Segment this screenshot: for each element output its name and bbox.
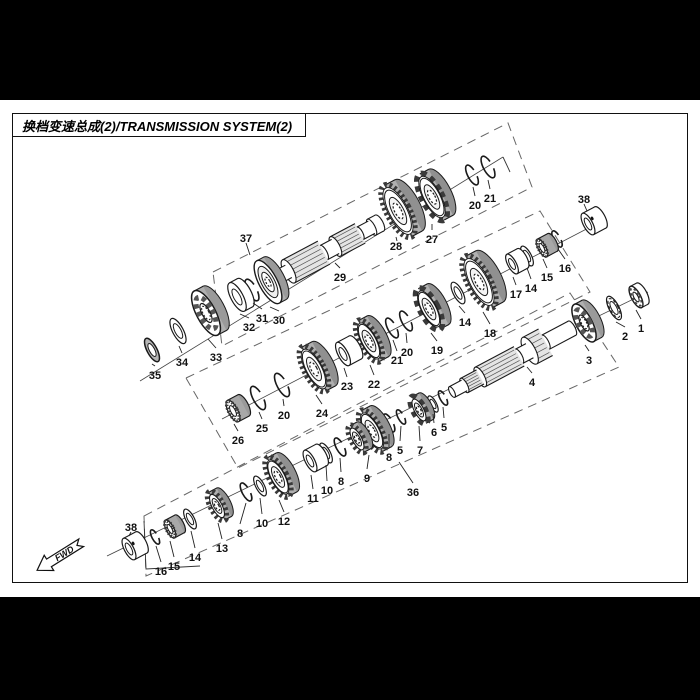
leader-line-22 (370, 365, 374, 375)
title-box: 换档变速总成(2)/TRANSMISSION SYSTEM(2) (12, 113, 306, 137)
callout-31: 31 (256, 313, 268, 325)
callout-7: 7 (417, 445, 423, 457)
callout-38: 38 (578, 194, 590, 206)
part-32 (224, 276, 258, 314)
part-20 (397, 309, 415, 332)
leader-line-34 (179, 346, 182, 353)
leader-line-19 (431, 333, 437, 341)
part-16 (149, 529, 162, 546)
leader-line-8 (340, 458, 341, 472)
callout-22: 22 (368, 379, 380, 391)
callout-10: 10 (321, 485, 333, 497)
callout-8: 8 (237, 528, 243, 540)
part-15 (162, 513, 188, 539)
callout-4: 4 (529, 377, 536, 389)
leader-line-7 (419, 426, 420, 441)
callout-13: 13 (216, 543, 228, 555)
callout-14: 14 (459, 317, 472, 329)
callout-2: 2 (622, 331, 628, 343)
callout-1: 1 (638, 323, 644, 335)
callout-15: 15 (541, 272, 553, 284)
callout-10: 10 (256, 518, 268, 530)
leader-line-11 (311, 475, 313, 489)
leader-line-5 (400, 426, 401, 441)
leader-line-10 (326, 465, 327, 481)
callout-20: 20 (401, 347, 413, 359)
leader-line-15 (543, 259, 547, 268)
part-35 (142, 336, 163, 364)
leader-line-15 (170, 541, 174, 557)
part-29 (270, 210, 389, 290)
leader-line-26 (234, 424, 238, 431)
callout-9: 9 (364, 473, 370, 485)
leader-line-10 (260, 498, 262, 514)
fwd-arrow: FWD (32, 535, 86, 578)
callout-17: 17 (510, 289, 522, 301)
callout-28: 28 (390, 241, 402, 253)
part-34 (167, 316, 190, 346)
leader-line-35 (152, 364, 155, 366)
leader-line-12 (279, 500, 284, 512)
leader-line-17 (513, 277, 516, 285)
leader-line-20 (283, 399, 284, 406)
callout-32: 32 (243, 322, 255, 334)
callout-36: 36 (407, 487, 419, 499)
leader-line-33 (208, 339, 216, 348)
callout-21: 21 (484, 193, 496, 205)
callout-38: 38 (125, 522, 137, 534)
part-19 (411, 280, 457, 333)
part-2 (604, 294, 625, 322)
leader-line-18 (483, 312, 490, 324)
callout-23: 23 (341, 381, 353, 393)
callout-15: 15 (168, 561, 180, 573)
leader-line-2 (616, 322, 625, 327)
callout-25: 25 (256, 423, 268, 435)
part-25 (248, 384, 269, 412)
callout-30: 30 (273, 315, 285, 327)
leader-line-21 (393, 340, 397, 351)
leader-line-24 (316, 395, 322, 404)
part-38 (119, 530, 151, 562)
callout-34: 34 (176, 357, 189, 369)
exploded-diagram: 3534333231302928272021373826252024232221… (0, 0, 700, 700)
callout-8: 8 (338, 476, 344, 488)
leader-line-13 (218, 523, 222, 539)
callout-16: 16 (155, 566, 167, 578)
leader-line-29 (335, 263, 340, 268)
callout-35: 35 (149, 370, 161, 382)
callout-5: 5 (397, 445, 403, 457)
leader-line-14 (527, 268, 531, 279)
leader-line-14 (459, 306, 465, 313)
callout-19: 19 (431, 345, 443, 357)
part-8 (238, 481, 254, 502)
leader-line-16 (156, 546, 161, 562)
leader-line-3 (585, 345, 589, 351)
callout-6: 6 (431, 427, 437, 439)
callout-3: 3 (586, 355, 592, 367)
callout-29: 29 (334, 272, 346, 284)
part-38 (578, 205, 610, 237)
part-20 (272, 371, 293, 399)
page-title: 换档变速总成(2)/TRANSMISSION SYSTEM(2) (13, 116, 292, 135)
callout-11: 11 (307, 493, 319, 505)
axis-bracket-line (503, 157, 510, 172)
leader-line-25 (259, 412, 262, 419)
leader-line-30 (270, 307, 279, 311)
leader-line-23 (344, 368, 347, 377)
leader-line-8 (240, 503, 246, 524)
callout-27: 27 (426, 234, 438, 246)
callout-37: 37 (240, 233, 252, 245)
callout-8: 8 (386, 452, 392, 464)
callout-14: 14 (525, 283, 538, 295)
leader-line-21 (488, 180, 490, 189)
part-14 (448, 280, 467, 306)
callout-14: 14 (189, 552, 202, 564)
callout-20: 20 (278, 410, 290, 422)
parts-diagram-page: 3534333231302928272021373826252024232221… (0, 0, 700, 700)
part-5 (395, 409, 408, 426)
callout-18: 18 (484, 328, 496, 340)
part-26 (223, 393, 253, 424)
part-3 (567, 296, 609, 345)
leader-line-4 (527, 367, 532, 373)
part-5 (437, 390, 450, 407)
leader-line-9 (367, 455, 369, 469)
part-20 (463, 163, 481, 186)
leader-line-5 (443, 407, 444, 418)
callout-5: 5 (441, 422, 447, 434)
leader-line-36 (399, 462, 413, 483)
part-13 (204, 485, 237, 523)
callout-26: 26 (232, 435, 244, 447)
leader-line-1 (636, 310, 641, 319)
leader-line-20 (473, 187, 475, 196)
callout-33: 33 (210, 352, 222, 364)
leader-line-14 (191, 531, 195, 548)
part-21 (478, 154, 497, 180)
leader-line-20 (406, 333, 407, 343)
part-1 (626, 281, 652, 310)
callout-20: 20 (469, 200, 481, 212)
callout-24: 24 (316, 408, 329, 420)
callout-12: 12 (278, 516, 290, 528)
callout-16: 16 (559, 263, 571, 275)
